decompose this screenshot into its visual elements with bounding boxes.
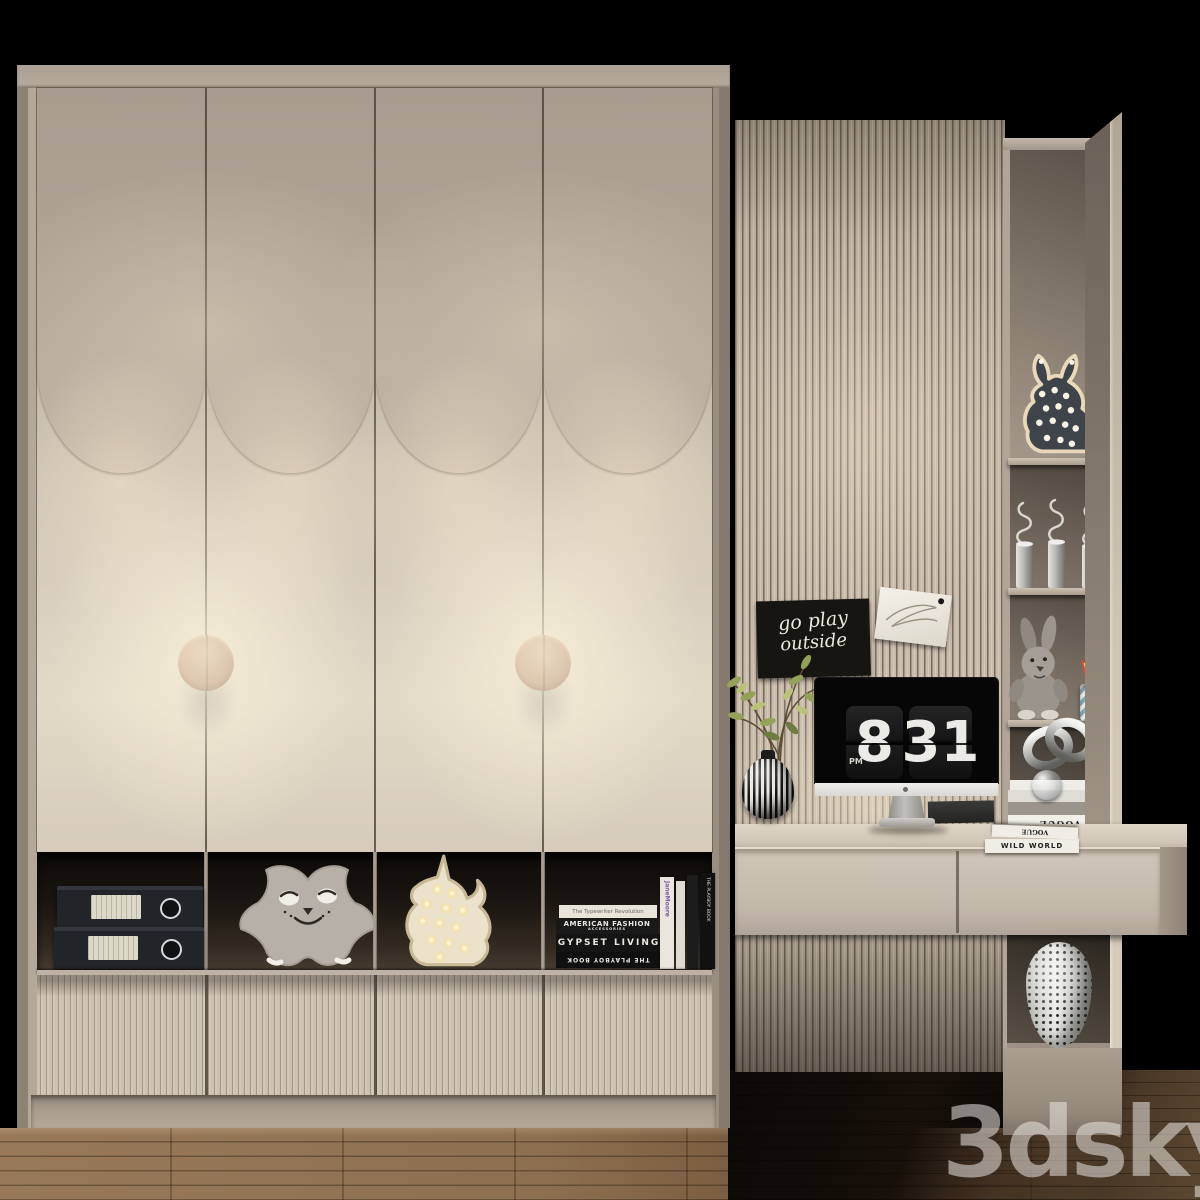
door-gap	[374, 88, 376, 852]
book-spine-playboy-vertical: THE PLAYBOY BOOK	[700, 873, 715, 969]
book-spine-black	[687, 875, 698, 969]
flip-clock-hour-panel: 8	[846, 706, 903, 779]
pinned-note	[874, 587, 952, 647]
round-handle-left-pair	[178, 635, 234, 691]
apple-logo-icon	[903, 787, 908, 792]
black-binder-bottom	[54, 927, 204, 969]
book-playboy: THE PLAYBOY BOOK	[556, 952, 660, 968]
cubby-divider	[541, 852, 545, 975]
flip-clock-minute-panel: 31	[909, 706, 972, 779]
book-spine-janemoore: JaneMoore	[660, 877, 674, 969]
binder-ring	[160, 898, 181, 919]
striped-vase	[742, 757, 794, 819]
fluted-drawer-row	[37, 975, 712, 1095]
children-room-furniture-render: The Typewriter Revolution AMERICAN FASHI…	[0, 0, 1200, 1200]
door-arch-panel	[375, 88, 544, 473]
imac-stand-neck	[888, 796, 925, 820]
black-binder-top	[57, 886, 203, 927]
imac-base-shadow	[868, 826, 948, 834]
round-handle-right-pair	[515, 635, 571, 691]
door-gap	[205, 88, 207, 852]
3dsky-watermark: 3dsky	[942, 1086, 1200, 1199]
wardrobe-door-2	[206, 88, 375, 852]
drawer-gap	[542, 975, 545, 1095]
binder-label	[91, 895, 141, 919]
binder-label	[88, 936, 138, 960]
starfish-plush-toy	[233, 860, 383, 972]
door-arch-panel	[37, 88, 206, 473]
desk-drawer-gap	[956, 851, 959, 933]
book-typewriter-revolution: The Typewriter Revolution	[559, 905, 657, 918]
flip-clock-meridiem: PM	[849, 757, 863, 766]
cubby-divider	[204, 852, 208, 975]
door-gap	[542, 88, 544, 852]
dark-box-behind-stand	[928, 800, 994, 823]
plush-rabbit-toy	[1005, 612, 1083, 720]
door-edge	[1110, 112, 1122, 1132]
door-arch-panel	[206, 88, 375, 473]
book-american-fashion: AMERICAN FASHION ACCESSORIES	[556, 918, 658, 934]
imac-stand-base	[879, 818, 935, 827]
binder-ring	[161, 939, 182, 960]
cubby-book-stack: The Typewriter Revolution AMERICAN FASHI…	[556, 905, 662, 968]
wardrobe-doors	[37, 88, 712, 852]
wardrobe-open-shelf-row: The Typewriter Revolution AMERICAN FASHI…	[37, 852, 712, 975]
door-arch-panel	[543, 88, 712, 473]
wardrobe-door-1	[37, 88, 206, 852]
desk-top	[735, 824, 1187, 849]
wardrobe-top-frame	[17, 65, 730, 88]
wardrobe-door-4	[543, 88, 712, 852]
unicorn-marquee-lamp	[389, 854, 509, 970]
spine-title: THE PLAYBOY BOOK	[705, 877, 710, 922]
drawer-gap	[374, 975, 377, 1095]
desk-book-wild-world: WILD WORLD	[985, 839, 1079, 853]
glass-sphere-ornament	[1032, 770, 1062, 800]
wardrobe-plinth	[31, 1095, 716, 1128]
note-scribble	[874, 587, 952, 647]
desk-side-panel	[1160, 847, 1187, 935]
book-gypset-living: GYPSET LIVING	[556, 934, 662, 952]
spine-title: JaneMoore	[664, 881, 671, 917]
book-spine-white	[676, 881, 685, 969]
desk-drawers	[735, 849, 1160, 935]
wardrobe-door-3	[375, 88, 544, 852]
book-subtitle: ACCESSORIES	[588, 928, 626, 932]
drawer-gap	[205, 975, 208, 1095]
